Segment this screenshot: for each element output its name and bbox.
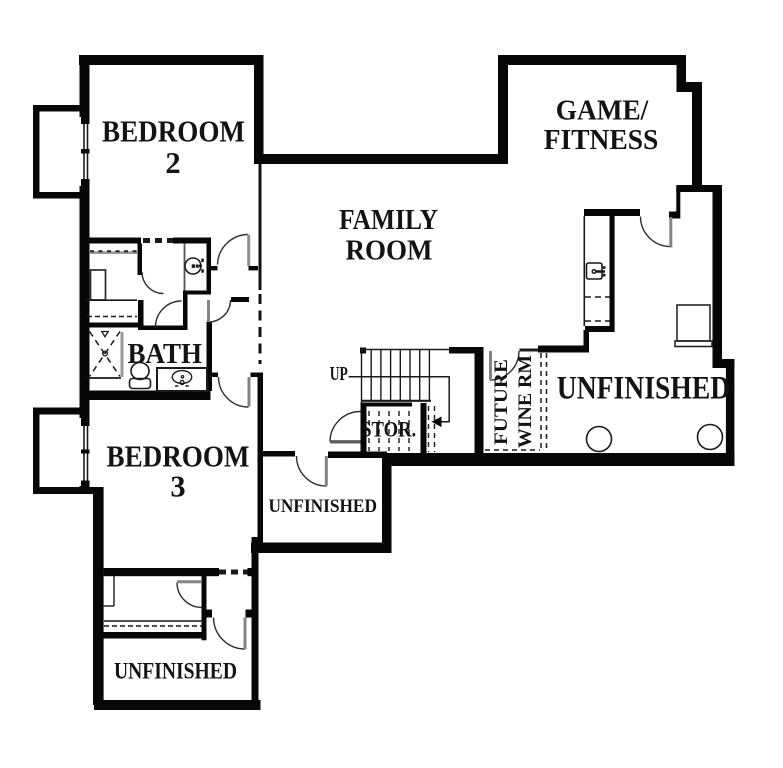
svg-text:GAME/: GAME/ xyxy=(556,95,649,127)
svg-text:STOR.: STOR. xyxy=(361,416,416,441)
svg-text:WINE RM: WINE RM xyxy=(515,355,536,448)
svg-text:UNFINISHED: UNFINISHED xyxy=(268,497,377,517)
svg-text:2: 2 xyxy=(165,146,180,180)
svg-text:FAMILY: FAMILY xyxy=(339,204,438,236)
svg-text:UNFINISHED: UNFINISHED xyxy=(114,658,237,684)
svg-text:ROOM: ROOM xyxy=(346,235,433,267)
svg-text:3: 3 xyxy=(170,470,185,504)
svg-text:UP: UP xyxy=(330,363,348,385)
svg-text:UNFINISHED: UNFINISHED xyxy=(557,370,731,406)
svg-text:BEDROOM: BEDROOM xyxy=(107,440,250,474)
svg-text:FITNESS: FITNESS xyxy=(544,124,659,156)
svg-text:BEDROOM: BEDROOM xyxy=(102,115,245,149)
svg-text:BATH: BATH xyxy=(128,339,203,370)
svg-text:FUTURE: FUTURE xyxy=(491,359,512,445)
